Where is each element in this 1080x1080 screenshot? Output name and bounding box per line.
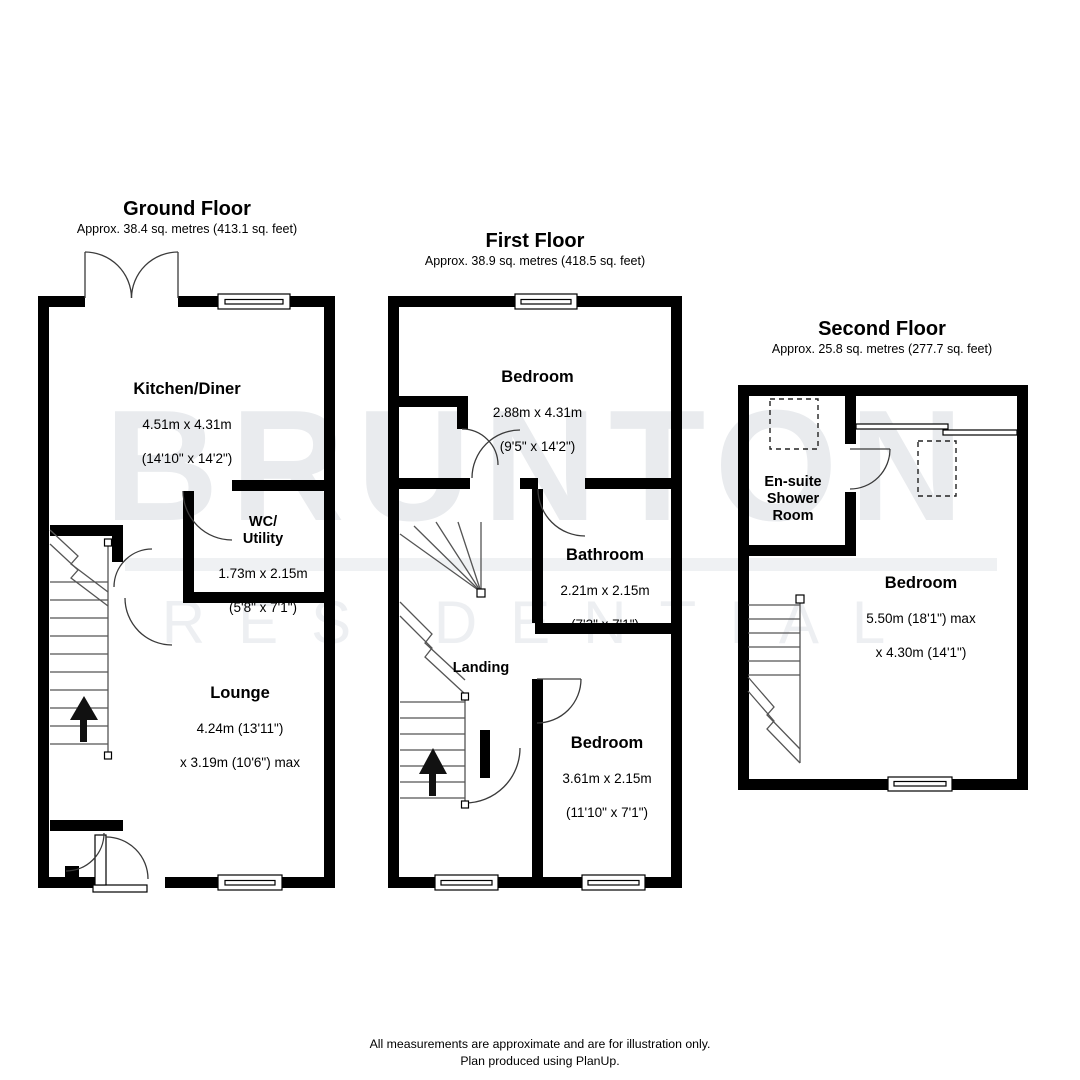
lounge-door-arc — [125, 598, 172, 645]
room-label-bedroom-2: Bedroom 3.61m x 2.15m (11'10" x 7'1") — [482, 716, 732, 839]
room-label-bathroom: Bathroom 2.21m x 2.15m (7'3" x 7'1") — [505, 528, 705, 651]
room-label-landing: Landing — [420, 642, 542, 695]
floor-area: Approx. 38.9 sq. metres (418.5 sq. feet) — [385, 253, 685, 269]
floor-title: Ground Floor — [37, 198, 337, 221]
room-label-bedroom-3: Bedroom 5.50m (18'1") max x 4.30m (14'1"… — [796, 556, 1046, 679]
window-icon — [888, 777, 952, 791]
room-label-ensuite: En-suite Shower Room — [733, 456, 853, 543]
window-icon — [218, 294, 290, 309]
ground-floor-header: Ground Floor Approx. 38.4 sq. metres (41… — [37, 198, 337, 237]
window-icon — [515, 294, 577, 309]
floor-area: Approx. 38.4 sq. metres (413.1 sq. feet) — [37, 221, 337, 237]
up-arrow-icon — [70, 696, 98, 742]
disclaimer-line1: All measurements are approximate and are… — [0, 1036, 1080, 1053]
room-label-bedroom-1: Bedroom 2.88m x 4.31m (9'5" x 14'2") — [415, 350, 660, 473]
floor-area: Approx. 25.8 sq. metres (277.7 sq. feet) — [732, 341, 1032, 357]
floor-title: First Floor — [385, 230, 685, 253]
room-label-lounge: Lounge 4.24m (13'11") x 3.19m (10'6") ma… — [115, 666, 365, 789]
window-icon — [582, 875, 645, 890]
floor-title: Second Floor — [732, 318, 1032, 341]
floorplan-page: BRUNTON RESIDENTIAL Ground Floor Approx.… — [0, 0, 1080, 1080]
disclaimer-line2: Plan produced using PlanUp. — [0, 1053, 1080, 1070]
first-floor-header: First Floor Approx. 38.9 sq. metres (418… — [385, 230, 685, 269]
french-doors-icon — [85, 252, 178, 298]
second-floor-header: Second Floor Approx. 25.8 sq. metres (27… — [732, 318, 1032, 357]
roof-window-line — [856, 424, 1017, 435]
room-label-wc-utility: WC/ Utility 1.73m x 2.15m (5'8" x 7'1") — [197, 496, 329, 634]
disclaimer: All measurements are approximate and are… — [0, 1036, 1080, 1070]
window-icon — [218, 875, 282, 890]
ensuite-door-arc — [850, 449, 890, 489]
room-label-kitchen-diner: Kitchen/Diner 4.51m x 4.31m (14'10" x 14… — [62, 362, 312, 485]
up-arrow-icon — [419, 748, 447, 796]
window-icon — [435, 875, 498, 890]
